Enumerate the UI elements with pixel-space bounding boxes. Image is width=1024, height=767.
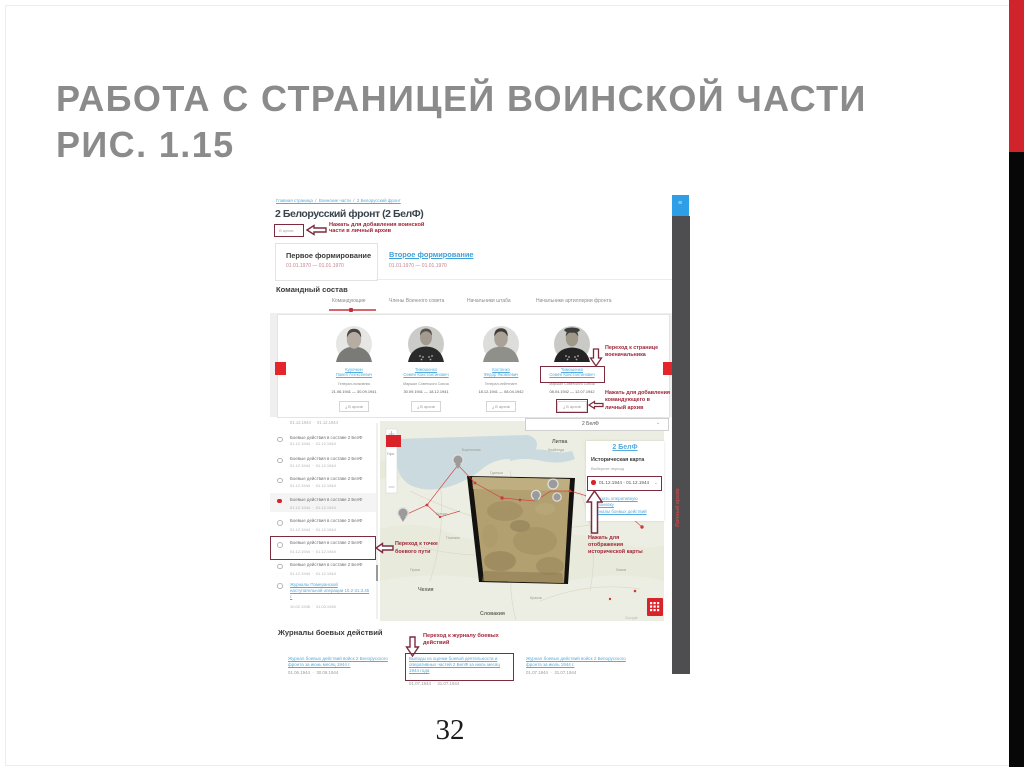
svg-text:Чехия: Чехия <box>418 587 434 593</box>
svg-text:Гданьск: Гданьск <box>490 471 503 475</box>
svg-text:Горо: Горо <box>387 452 394 456</box>
svg-text:Google: Google <box>625 615 639 620</box>
svg-text:Краков: Краков <box>530 596 542 600</box>
svg-text:Словакия: Словакия <box>480 611 505 617</box>
svg-text:Борнхольм: Борнхольм <box>462 448 481 452</box>
svg-text:Прага: Прага <box>410 568 420 572</box>
svg-text:Львов: Львов <box>616 568 626 572</box>
svg-text:Познань: Познань <box>446 536 460 540</box>
svg-text:Клайпеда: Клайпеда <box>548 448 564 452</box>
svg-text:Литва: Литва <box>552 439 567 445</box>
